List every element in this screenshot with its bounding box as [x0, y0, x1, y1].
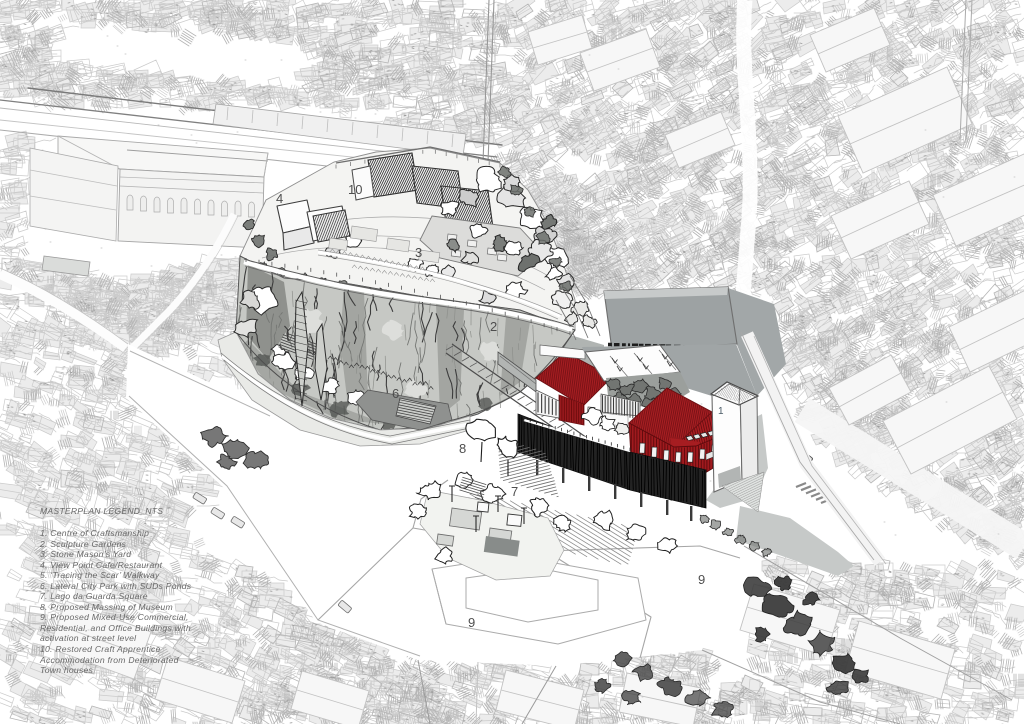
svg-text:7: 7	[511, 484, 518, 499]
svg-text:Town houses: Town houses	[40, 665, 94, 675]
svg-text:8: 8	[459, 441, 466, 456]
svg-text:Residential, and Office Buildi: Residential, and Office Buildings with	[40, 623, 191, 633]
svg-text:4. View Point Cafe/Restaurant: 4. View Point Cafe/Restaurant	[40, 560, 163, 570]
svg-text:1: 1	[718, 406, 724, 417]
svg-text:2. Sculpture Gardens: 2. Sculpture Gardens	[39, 539, 127, 549]
svg-text:Accommodation from Deteriorate: Accommodation from Deteriorated	[39, 655, 179, 665]
svg-text:5. ‘Tracing the Scar’ Walkway: 5. ‘Tracing the Scar’ Walkway	[40, 570, 160, 580]
svg-text:4: 4	[276, 191, 283, 206]
svg-text:2: 2	[490, 319, 497, 334]
svg-text:6: 6	[392, 386, 399, 401]
svg-text:10: 10	[348, 182, 362, 197]
svg-text:3: 3	[415, 245, 422, 260]
svg-text:6. Lateral City Park with SUDs: 6. Lateral City Park with SUDs Ponds	[40, 581, 192, 591]
svg-text:1. Centre of Craftsmanship: 1. Centre of Craftsmanship	[40, 528, 149, 538]
svg-text:3. Stone Mason’s Yard: 3. Stone Mason’s Yard	[40, 549, 131, 559]
svg-text:9. Proposed Mixed-Use Commerci: 9. Proposed Mixed-Use Commercial,	[40, 612, 189, 622]
svg-text:7. Lago da Guarda Square: 7. Lago da Guarda Square	[40, 591, 148, 601]
svg-text:10. Restored Craft Apprentice: 10. Restored Craft Apprentice	[40, 644, 161, 654]
svg-text:8. Proposed Massing of Museum: 8. Proposed Massing of Museum	[40, 602, 173, 612]
svg-text:9: 9	[698, 572, 705, 587]
svg-text:activation at street level: activation at street level	[40, 633, 137, 643]
svg-text:MASTERPLAN LEGEND_NTS: MASTERPLAN LEGEND_NTS	[40, 506, 163, 516]
svg-text:9: 9	[468, 615, 475, 630]
